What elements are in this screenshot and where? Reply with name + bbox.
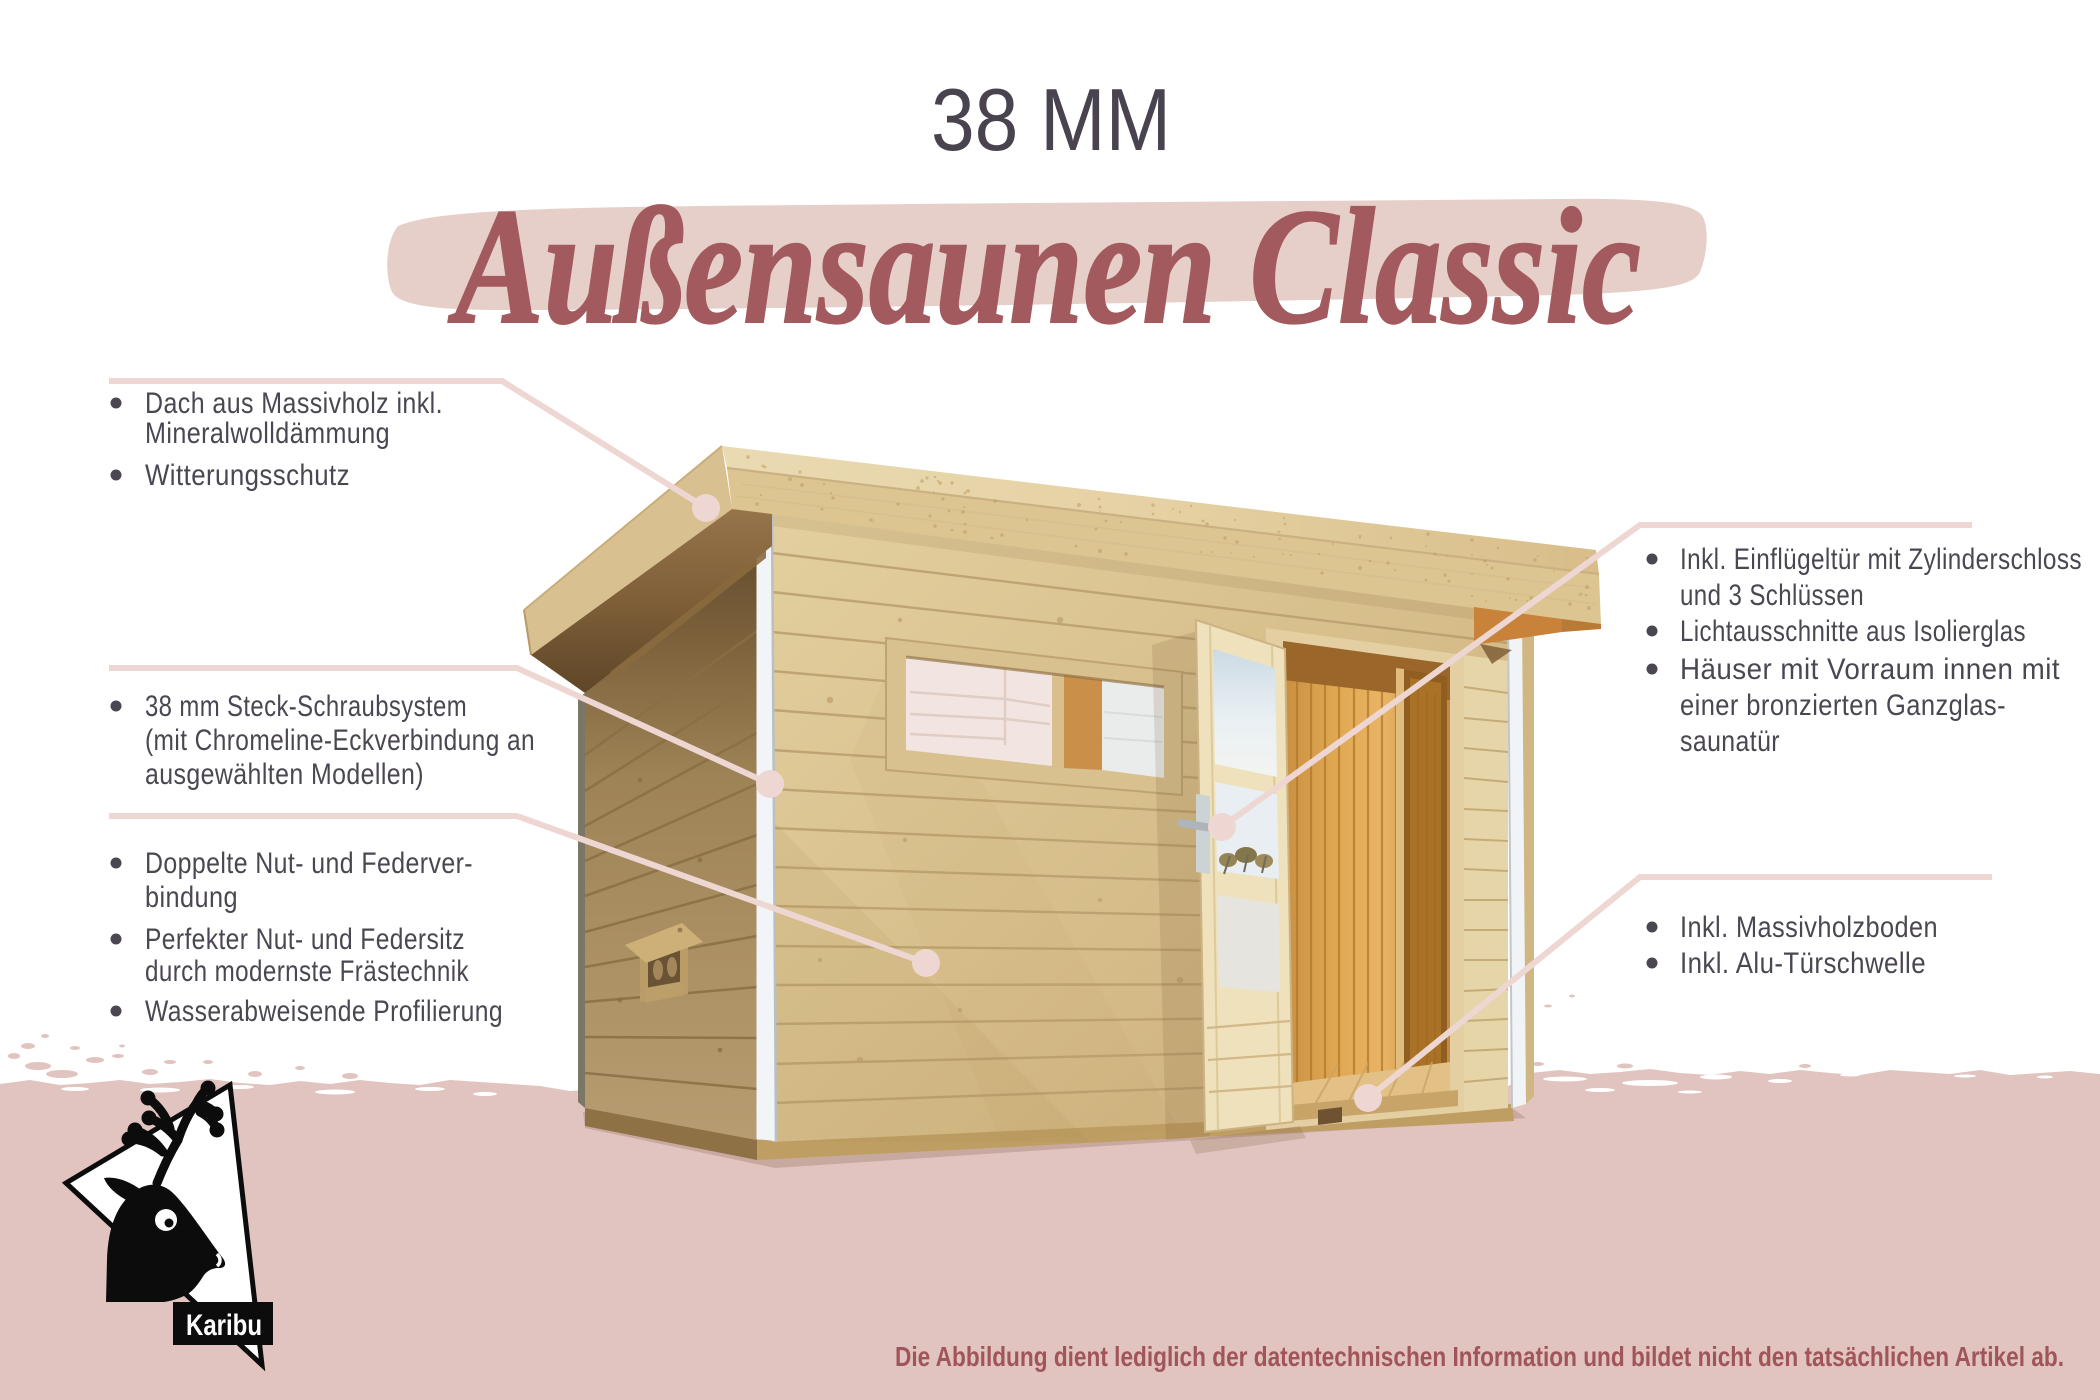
svg-text:Lichtausschnitte aus Isoliergl: Lichtausschnitte aus Isolierglas [1680,615,2026,648]
svg-text:38 mm Steck-Schraubsystem: 38 mm Steck-Schraubsystem [145,690,467,723]
svg-text:Karibu: Karibu [186,1309,262,1342]
svg-text:Inkl. Massivholzboden: Inkl. Massivholzboden [1680,911,1938,944]
svg-text:saunatür: saunatür [1680,725,1780,758]
svg-text:und 3 Schlüssen: und 3 Schlüssen [1680,579,1864,612]
svg-text:Wasserabweisende Profilierung: Wasserabweisende Profilierung [145,995,503,1028]
svg-text:Doppelte Nut- und Federver-: Doppelte Nut- und Federver- [145,847,473,880]
svg-text:Witterungsschutz: Witterungsschutz [145,459,350,492]
svg-text:durch modernste Frästechnik: durch modernste Frästechnik [145,955,469,988]
svg-text:Außensaunen Classic: Außensaunen Classic [448,174,1641,358]
svg-text:Perfekter Nut- und Federsitz: Perfekter Nut- und Federsitz [145,923,465,956]
svg-text:Inkl. Alu-Türschwelle: Inkl. Alu-Türschwelle [1680,947,1926,980]
svg-text:38 MM: 38 MM [931,70,1171,169]
svg-text:einer bronzierten Ganzglas-: einer bronzierten Ganzglas- [1680,689,2006,722]
svg-text:ausgewählten Modellen): ausgewählten Modellen) [145,758,424,791]
svg-text:Inkl. Einflügeltür mit Zylinde: Inkl. Einflügeltür mit Zylinderschloss [1680,543,2082,576]
svg-text:Häuser mit Vorraum innen mit: Häuser mit Vorraum innen mit [1680,653,2060,686]
svg-text:(mit Chromeline-Eckverbindung: (mit Chromeline-Eckverbindung an [145,724,535,757]
svg-text:Dach aus Massivholz inkl.: Dach aus Massivholz inkl. [145,387,443,420]
svg-text:bindung: bindung [145,881,238,914]
svg-text:Die Abbildung dient lediglich: Die Abbildung dient lediglich der datent… [895,1341,2064,1372]
svg-text:Mineralwolldämmung: Mineralwolldämmung [145,417,390,450]
